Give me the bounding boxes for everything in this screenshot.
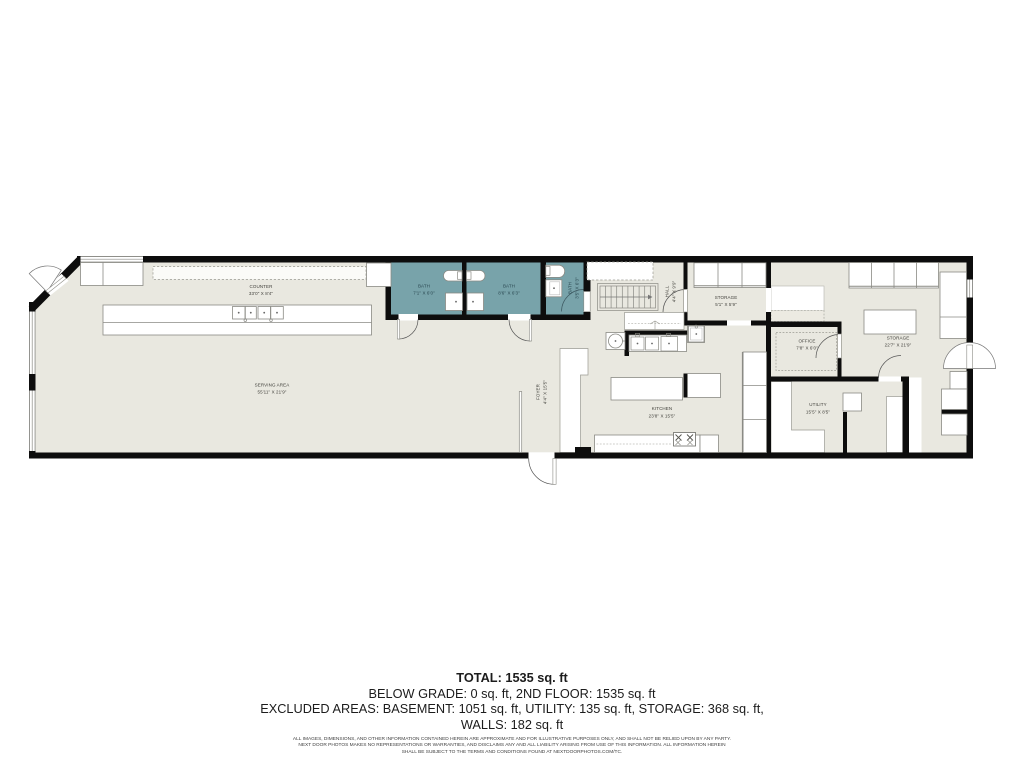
svg-text:SERVING AREA: SERVING AREA xyxy=(255,383,290,388)
svg-text:7'8" X 6'0": 7'8" X 6'0" xyxy=(796,346,818,351)
svg-text:COUNTER: COUNTER xyxy=(250,284,274,289)
svg-text:8'6" X 6'3": 8'6" X 6'3" xyxy=(498,291,520,296)
svg-text:5'1" X 5'9": 5'1" X 5'9" xyxy=(715,302,737,307)
svg-text:7'1" X 6'0": 7'1" X 6'0" xyxy=(413,291,435,296)
svg-text:BATH: BATH xyxy=(418,284,430,289)
svg-text:STORAGE: STORAGE xyxy=(715,295,738,300)
svg-text:55'11" X 21'9": 55'11" X 21'9" xyxy=(258,390,287,395)
svg-text:BATH: BATH xyxy=(503,284,515,289)
svg-text:22'7" X 21'9": 22'7" X 21'9" xyxy=(885,343,912,348)
svg-text:33'0" X 8'4": 33'0" X 8'4" xyxy=(249,291,273,296)
svg-text:OFFICE: OFFICE xyxy=(798,339,815,344)
svg-text:UTILITY: UTILITY xyxy=(809,402,826,407)
svg-text:STORAGE: STORAGE xyxy=(887,336,910,341)
svg-text:KITCHEN: KITCHEN xyxy=(652,406,672,411)
svg-text:23'8" X 15'5": 23'8" X 15'5" xyxy=(649,414,676,419)
svg-text:15'5" X 8'5": 15'5" X 8'5" xyxy=(806,410,830,415)
